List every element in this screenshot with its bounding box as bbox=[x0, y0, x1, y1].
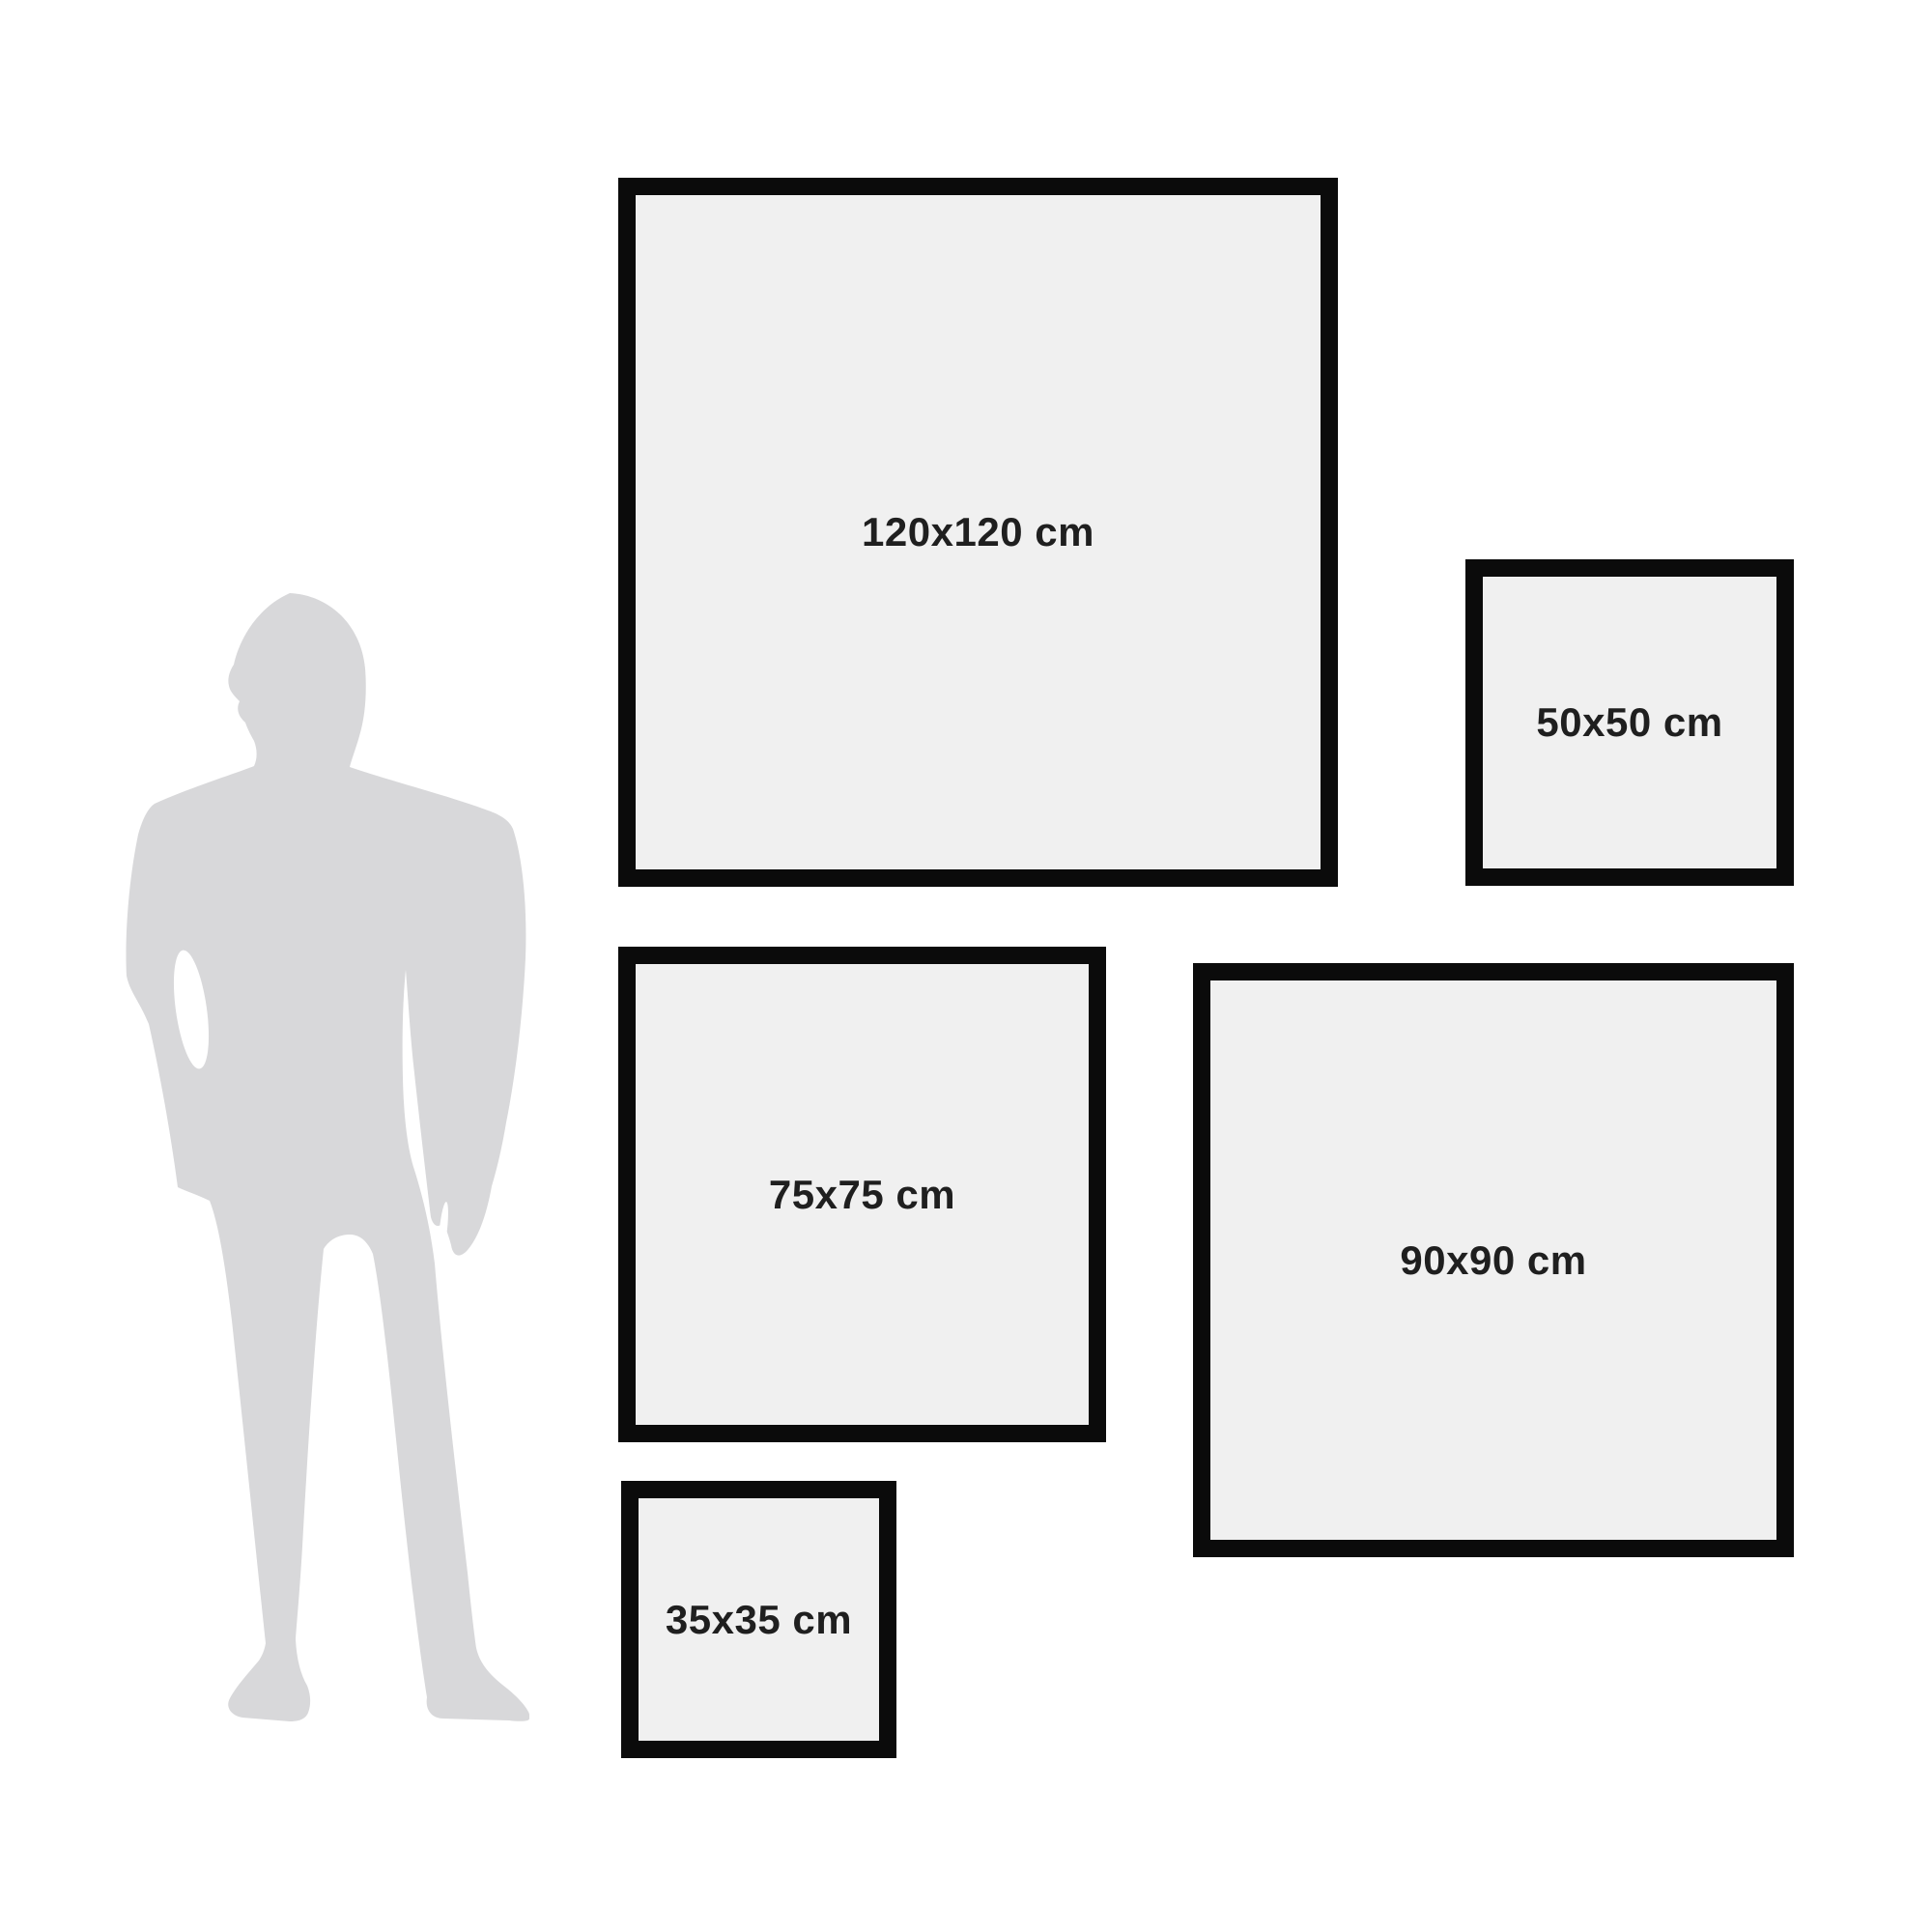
man-silhouette-body bbox=[127, 593, 530, 1721]
man-silhouette-icon bbox=[124, 591, 529, 1721]
size-frame-50x50: 50x50 cm bbox=[1465, 559, 1794, 886]
size-label-90x90: 90x90 cm bbox=[1400, 1237, 1586, 1284]
size-label-35x35: 35x35 cm bbox=[666, 1597, 852, 1643]
size-frame-75x75: 75x75 cm bbox=[618, 947, 1106, 1442]
size-frame-35x35: 35x35 cm bbox=[621, 1481, 896, 1758]
size-label-75x75: 75x75 cm bbox=[769, 1172, 955, 1218]
size-frame-90x90: 90x90 cm bbox=[1193, 963, 1794, 1557]
size-label-50x50: 50x50 cm bbox=[1536, 699, 1722, 746]
size-comparison-diagram: 120x120 cm 50x50 cm 75x75 cm 90x90 cm 35… bbox=[0, 0, 1932, 1932]
size-frame-120x120: 120x120 cm bbox=[618, 178, 1338, 887]
size-label-120x120: 120x120 cm bbox=[862, 509, 1094, 555]
